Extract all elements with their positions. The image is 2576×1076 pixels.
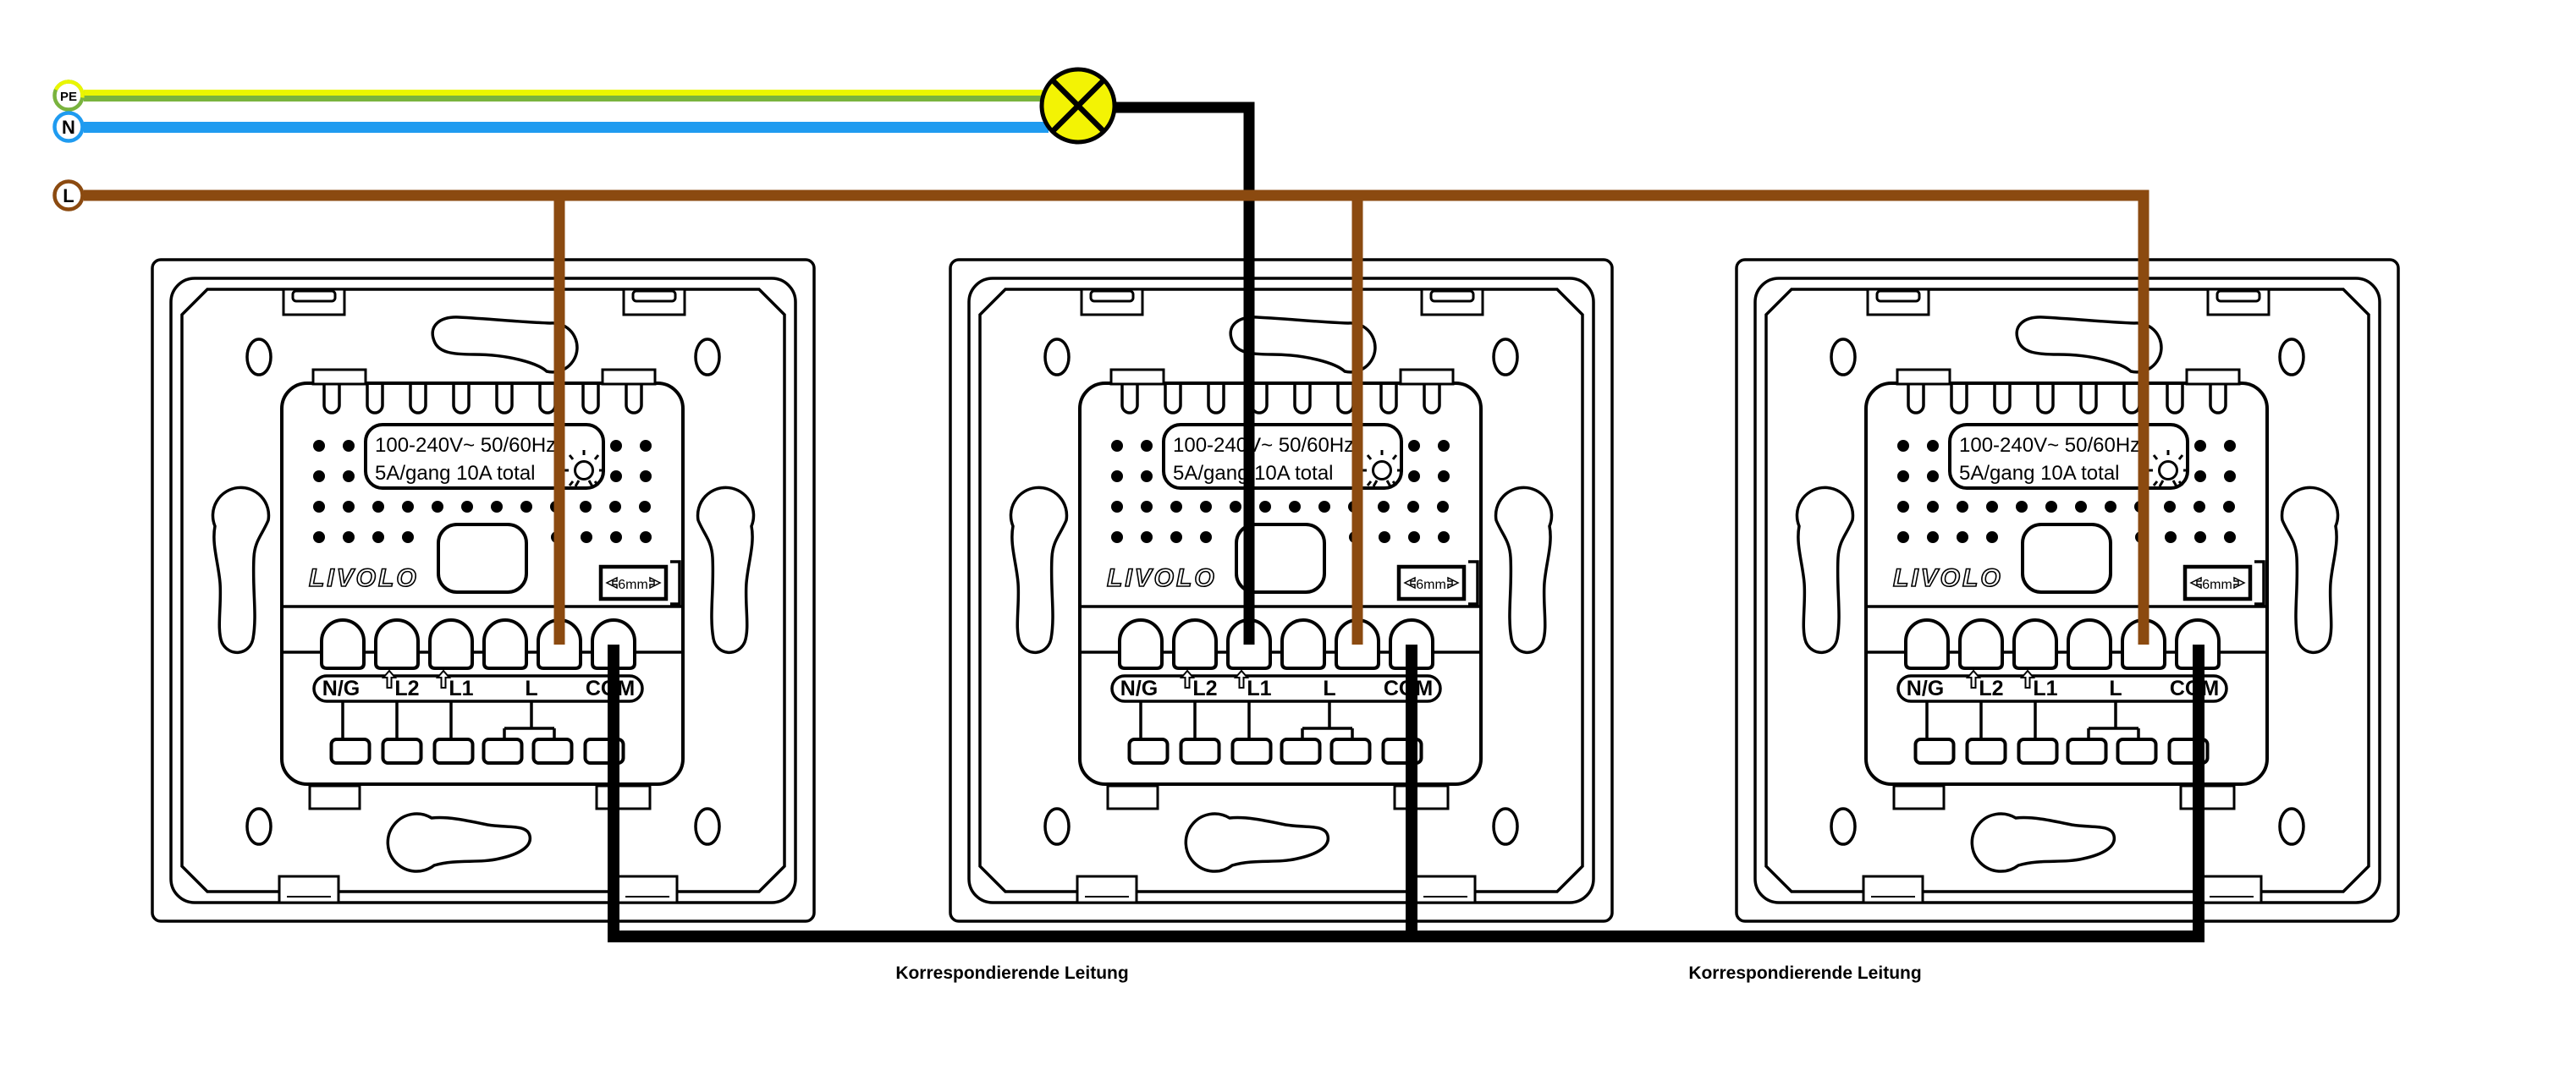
pe-wire-green [84,96,1043,102]
corresponding-line-label-1: Korrespondierende Leitung [895,963,1128,983]
pe-label-text: PE [60,90,77,104]
neutral-label-text: N [62,117,75,138]
live-label-text: L [63,185,74,206]
switch-2 [950,260,1612,921]
lamp-symbol [1042,69,1115,142]
pe-wire-yellow [84,90,1043,96]
neutral-wire [84,122,1049,133]
neutral-wire-label: N [55,113,83,141]
switch-3 [1737,260,2398,921]
corresponding-line-label-2: Korrespondierende Leitung [1688,963,1921,983]
pe-wire-label: PE [50,77,87,114]
switch-1 [152,260,814,921]
wiring-diagram: 100-240V~ 50/60Hz 5A/gang 10A total LIVO… [0,0,2576,1076]
live-wire-label: L [55,182,83,210]
